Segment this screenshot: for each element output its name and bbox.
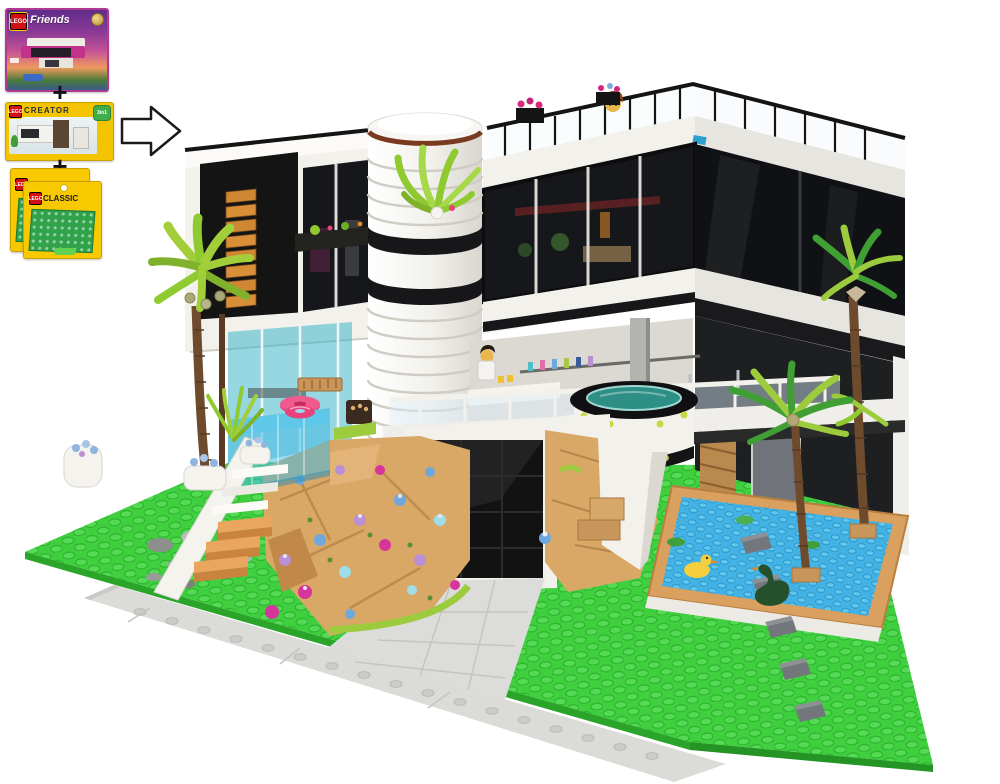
plus-sign-1: + — [45, 82, 75, 104]
lego-logo: LEGO — [8, 104, 23, 119]
lego-logo: LEGO — [9, 12, 28, 31]
creator-box-art — [9, 117, 97, 154]
moc-photo: LEGO Friends + LEGO CREATOR 3in1 + LEGO … — [0, 0, 1000, 784]
friends-series-label: Friends — [30, 14, 70, 26]
badge-3in1: 3in1 — [93, 105, 111, 121]
friends-box-car — [23, 74, 43, 81]
gold-badge — [91, 13, 104, 26]
hang-hole — [60, 184, 68, 192]
age-mark — [10, 58, 19, 63]
white-planter-left — [64, 440, 102, 487]
arrow-right-icon — [116, 100, 186, 160]
friends-box-art — [21, 38, 91, 72]
set-box-classic-front: LEGO CLASSIC — [23, 181, 102, 259]
lego-logo: LEGO — [28, 191, 43, 206]
classic-series-label: CLASSIC — [43, 194, 78, 203]
classic-art-blob — [54, 248, 76, 255]
creator-series-label: CREATOR — [24, 106, 70, 115]
baseplate-art — [29, 209, 96, 253]
pool-float — [285, 406, 315, 419]
